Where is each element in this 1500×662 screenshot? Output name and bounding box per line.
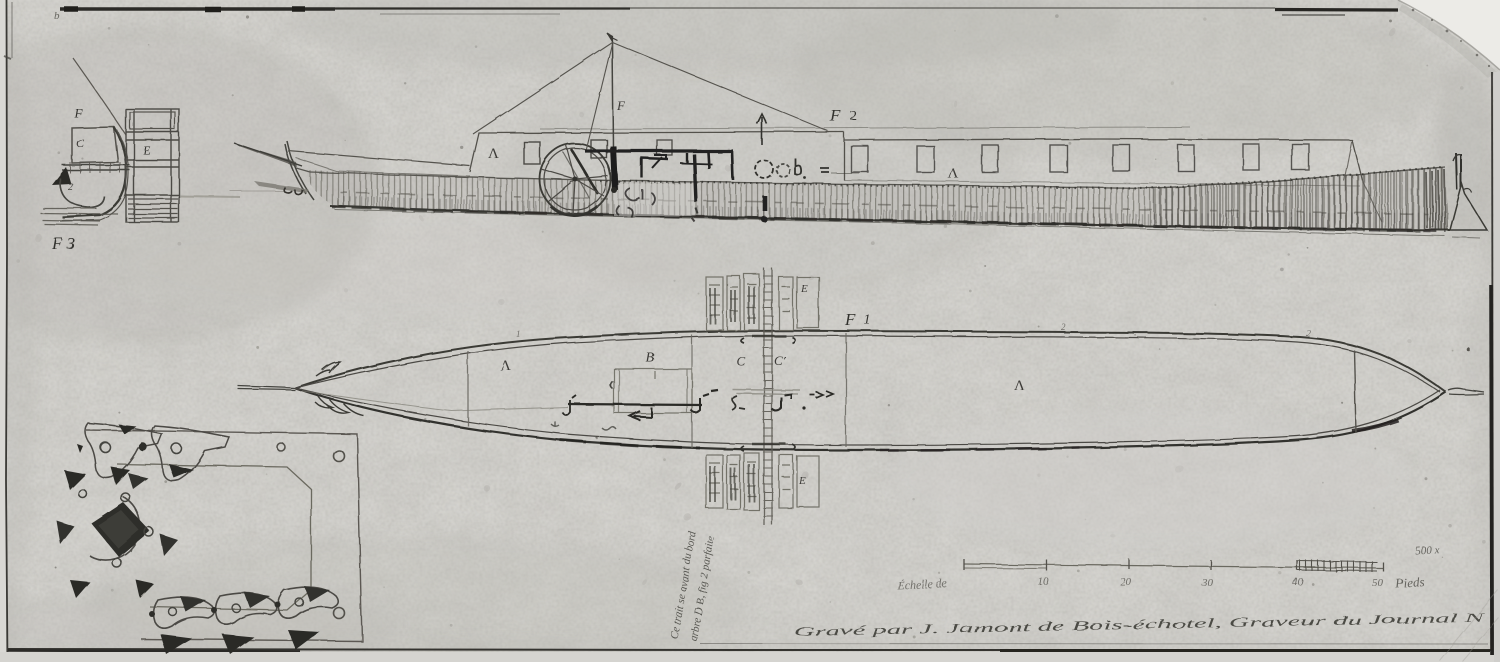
svg-text:F 3: F 3	[51, 234, 75, 253]
svg-text:Échelle de: Échelle de	[896, 576, 948, 592]
svg-text:F: F	[74, 106, 84, 121]
svg-text:B: B	[646, 351, 655, 366]
svg-text:E: E	[142, 143, 151, 157]
svg-text:500 x: 500 x	[1415, 544, 1440, 557]
svg-text:1: 1	[864, 313, 871, 328]
svg-text:Λ: Λ	[488, 146, 499, 162]
svg-text:Λ: Λ	[500, 358, 511, 374]
svg-text:Pieds: Pieds	[1394, 574, 1425, 591]
svg-text:20: 20	[1120, 576, 1132, 588]
svg-text:2: 2	[68, 182, 73, 193]
svg-text:F: F	[829, 106, 841, 125]
svg-text:Λ: Λ	[948, 166, 959, 182]
svg-text:50: 50	[1372, 577, 1384, 589]
svg-text:Λ: Λ	[1014, 378, 1025, 394]
svg-text:10: 10	[1038, 576, 1050, 588]
svg-text:2: 2	[1061, 322, 1066, 332]
svg-text:40: 40	[1292, 576, 1304, 588]
svg-text:1: 1	[516, 329, 521, 339]
svg-text:E: E	[800, 283, 808, 295]
svg-text:C: C	[737, 354, 746, 369]
svg-text:F: F	[844, 310, 856, 329]
svg-text:F: F	[616, 98, 626, 113]
svg-text:2: 2	[850, 109, 857, 124]
svg-text:30: 30	[1201, 577, 1214, 589]
svg-text:C: C	[76, 136, 85, 150]
svg-text:C': C'	[774, 353, 786, 368]
svg-text:2: 2	[1306, 328, 1311, 338]
svg-text:E: E	[798, 475, 806, 487]
svg-text:b: b	[54, 10, 60, 22]
